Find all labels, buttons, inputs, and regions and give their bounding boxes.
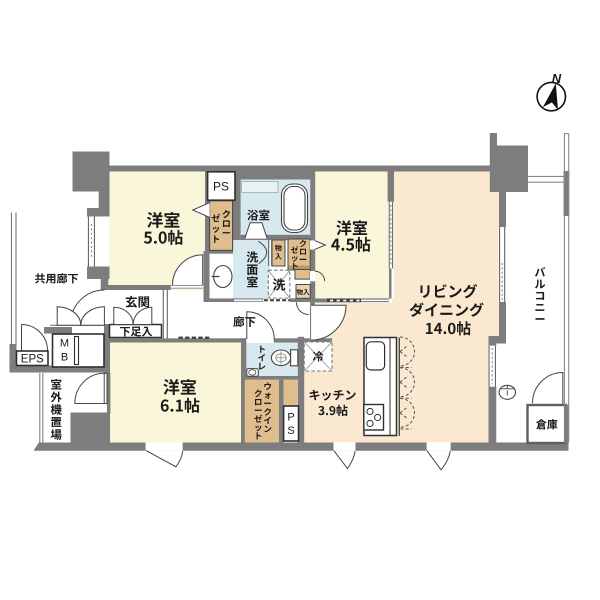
svg-text:P: P [287, 412, 294, 424]
svg-text:S: S [287, 425, 294, 437]
svg-text:M: M [60, 338, 69, 350]
svg-text:PS: PS [213, 180, 229, 194]
svg-text:B: B [61, 352, 68, 364]
svg-text:EPS: EPS [21, 354, 44, 366]
svg-text:N: N [552, 71, 562, 86]
